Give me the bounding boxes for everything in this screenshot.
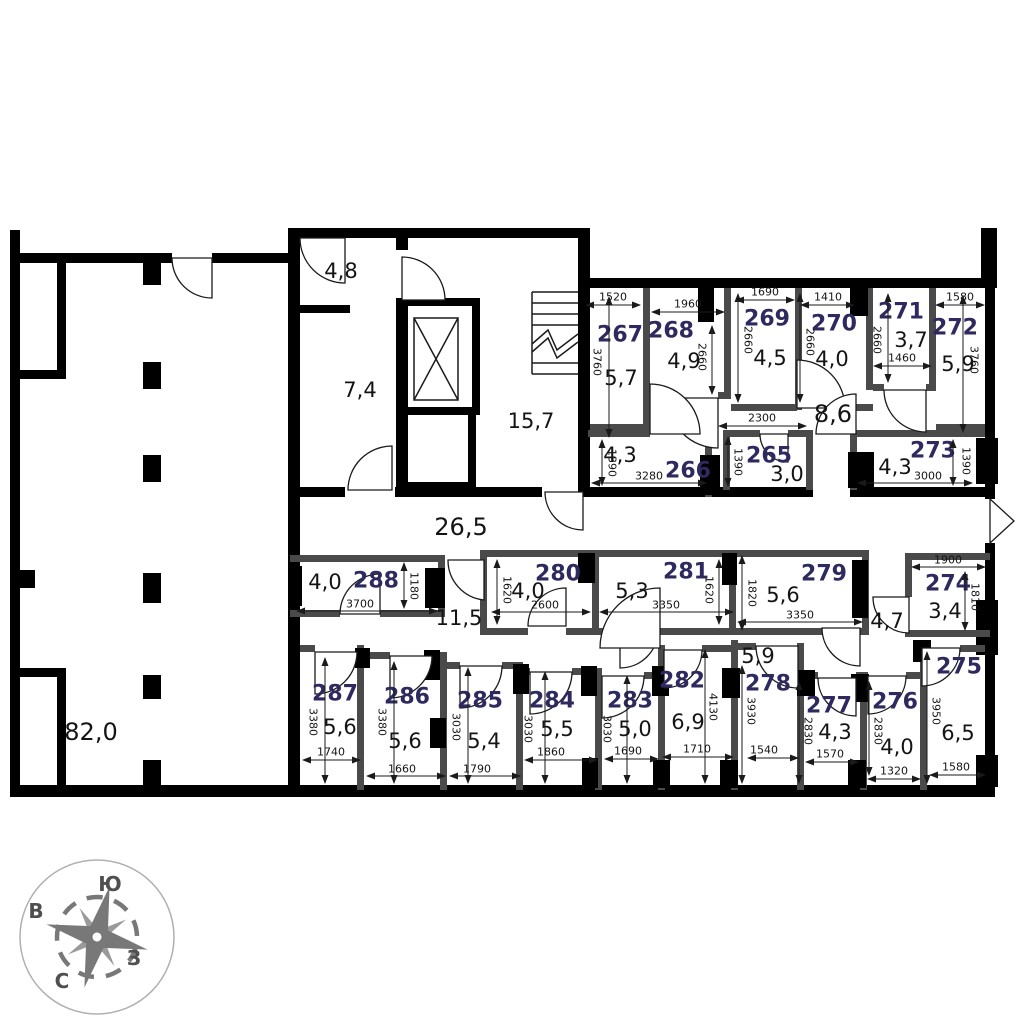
room-277-area: 4,3: [818, 720, 851, 744]
room-268-dim-h: 2660: [696, 343, 709, 371]
room-284-number: 284: [529, 689, 575, 714]
big-room-area-label: 82,0: [64, 718, 117, 746]
room-287-number: 287: [312, 682, 358, 707]
room-286-number: 286: [384, 685, 430, 710]
room-275-dim-w: 1580: [942, 761, 970, 774]
compass-label-east: В: [28, 899, 43, 923]
compass-label-west: З: [127, 946, 141, 970]
room-284-dim-h: 3030: [522, 715, 535, 743]
room-279: 279 5,6 3350 1820: [738, 556, 862, 630]
room-269-area: 4,5: [753, 346, 786, 370]
room-286-dim-w: 1660: [388, 763, 416, 776]
room-281-dim-w: 3350: [652, 599, 680, 612]
room-287-area: 5,6: [323, 715, 356, 739]
floor-plan: 82,0 4,8 7,4 15,7 26,5 11,5 8,6 4,7 267 …: [0, 0, 1024, 1023]
room-278-dim-w: 1540: [750, 744, 778, 757]
hall-area-label: 7,4: [343, 378, 376, 402]
room-274-number: 274: [925, 572, 971, 597]
room-274-dim-h: 1810: [969, 583, 982, 611]
room-282-area: 6,9: [671, 710, 704, 734]
room-281-area: 5,3: [615, 579, 648, 603]
room-279-number: 279: [801, 562, 847, 587]
room-276-number: 276: [872, 690, 918, 715]
room-266-number: 266: [665, 459, 711, 484]
corridor-east-label: 4,7: [870, 609, 903, 633]
room-278-number: 278: [745, 672, 791, 697]
room-278-area: 5,9: [741, 644, 774, 668]
room-277-dim-w: 1570: [816, 748, 844, 761]
corridor-west-label: 11,5: [436, 606, 483, 630]
compass-star: [34, 874, 160, 1000]
room-267: 267 5,7 1520 3760: [586, 291, 643, 438]
room-278-dim-h: 3930: [745, 697, 758, 725]
room-273-area: 4,3: [878, 455, 911, 479]
room-269-dim-w: 1690: [751, 286, 779, 299]
room-268-number: 268: [648, 319, 694, 344]
room-285-dim-h: 3030: [450, 713, 463, 741]
room-283-area: 5,0: [618, 717, 651, 741]
room-287-dim-w: 1740: [317, 746, 345, 759]
room-280-dim-w: 2600: [531, 599, 559, 612]
room-276-dim-w: 1320: [880, 765, 908, 778]
compass-rose: Ю В З С: [20, 860, 174, 1014]
room-277-number: 277: [806, 694, 852, 719]
room-265-dim-h: 1390: [732, 448, 745, 476]
room-271-area: 3,7: [894, 328, 927, 352]
room-286-dim-h: 3380: [376, 708, 389, 736]
room-288-area: 4,0: [308, 570, 341, 594]
room-279-dim-h: 1820: [746, 579, 759, 607]
room-288-dim-h: 1180: [408, 572, 421, 600]
room-284-dim-w: 1860: [537, 746, 565, 759]
room-267-dim-w: 1520: [599, 291, 627, 304]
room-265-dim-w: 2300: [748, 412, 776, 425]
room-273-dim-w: 3000: [914, 470, 942, 483]
room-270-number: 270: [811, 312, 857, 337]
room-281-dim-h: 1620: [703, 576, 716, 604]
room-279-dim-w: 3350: [786, 609, 814, 622]
room-274-area: 3,4: [928, 599, 961, 623]
room-268-dim-w: 1960: [674, 298, 702, 311]
room-265: 265 3,0 2300 1390: [719, 412, 806, 487]
room-272-number: 272: [932, 316, 978, 341]
room-273-dim-h: 1390: [960, 447, 973, 475]
room-276: 276 4,0 1320 2830: [868, 682, 920, 779]
room-273-number: 273: [910, 439, 956, 464]
room-275-area: 6,5: [941, 721, 974, 745]
room-266: 266 4,3 3280 1390: [592, 440, 711, 485]
entry-area-label: 4,8: [324, 259, 357, 283]
corridor-north-label: 8,6: [814, 400, 852, 428]
room-288-dim-w: 3700: [346, 598, 374, 611]
room-288-number: 288: [353, 569, 399, 594]
room-269-dim-h: 2660: [742, 326, 755, 354]
room-276-dim-h: 2830: [872, 717, 885, 745]
room-272: 272 5,9 1580 3760: [932, 291, 984, 433]
room-285-area: 5,4: [467, 729, 500, 753]
room-275-dim-h: 3950: [930, 697, 943, 725]
staircase: [532, 292, 578, 374]
room-282-dim-w: 1710: [683, 743, 711, 756]
room-274-dim-w: 1900: [934, 554, 962, 567]
room-283-dim-h: 3030: [601, 715, 614, 743]
floor-plan-page: 82,0 4,8 7,4 15,7 26,5 11,5 8,6 4,7 267 …: [0, 0, 1024, 1023]
room-267-number: 267: [597, 323, 643, 348]
room-283-number: 283: [607, 689, 653, 714]
room-267-dim-h: 3760: [591, 348, 604, 376]
room-265-area: 3,0: [770, 462, 803, 486]
room-282-dim-h: 4130: [707, 693, 720, 721]
room-270-dim-w: 1410: [814, 291, 842, 304]
room-288: 288 4,0 3700 1180: [297, 563, 437, 611]
room-270-area: 4,0: [815, 347, 848, 371]
room-280-dim-h: 1620: [501, 576, 514, 604]
stair-area-label: 15,7: [508, 409, 555, 433]
compass-label-north: С: [55, 969, 70, 993]
room-272-dim-h: 3760: [968, 346, 981, 374]
room-281-number: 281: [663, 560, 709, 585]
room-273: 273 4,3 3000 1390: [858, 439, 973, 486]
room-285-dim-w: 1790: [463, 763, 491, 776]
room-272-dim-w: 1580: [946, 291, 974, 304]
elevator-shaft: [414, 318, 458, 400]
room-271-number: 271: [878, 300, 924, 325]
room-287-dim-h: 3380: [307, 708, 320, 736]
room-266-dim-h: 1390: [606, 449, 619, 477]
room-279-area: 5,6: [766, 583, 799, 607]
room-270-dim-h: 2660: [804, 328, 817, 356]
room-269: 269 4,5 1690 2660: [736, 286, 794, 403]
room-286-area: 5,6: [388, 729, 421, 753]
room-266-dim-w: 3280: [635, 470, 663, 483]
partition-walls: [290, 288, 990, 790]
room-274: 274 3,4 1900 1810: [912, 554, 985, 631]
room-283-dim-w: 1690: [614, 745, 642, 758]
room-271-dim-h: 2660: [871, 326, 884, 354]
corridor-main-label: 26,5: [434, 513, 487, 541]
room-285-number: 285: [457, 689, 503, 714]
room-271-dim-w: 1460: [888, 352, 916, 365]
room-271: 271 3,7 1460 2660: [871, 294, 932, 382]
room-275-number: 275: [936, 655, 982, 680]
room-277-dim-h: 2830: [802, 717, 815, 745]
compass-label-south: Ю: [98, 872, 121, 896]
room-268: 268 4,9 1960 2660: [648, 298, 724, 395]
room-283: 283 5,0 1690 3030: [601, 676, 659, 783]
room-282-number: 282: [659, 669, 705, 694]
